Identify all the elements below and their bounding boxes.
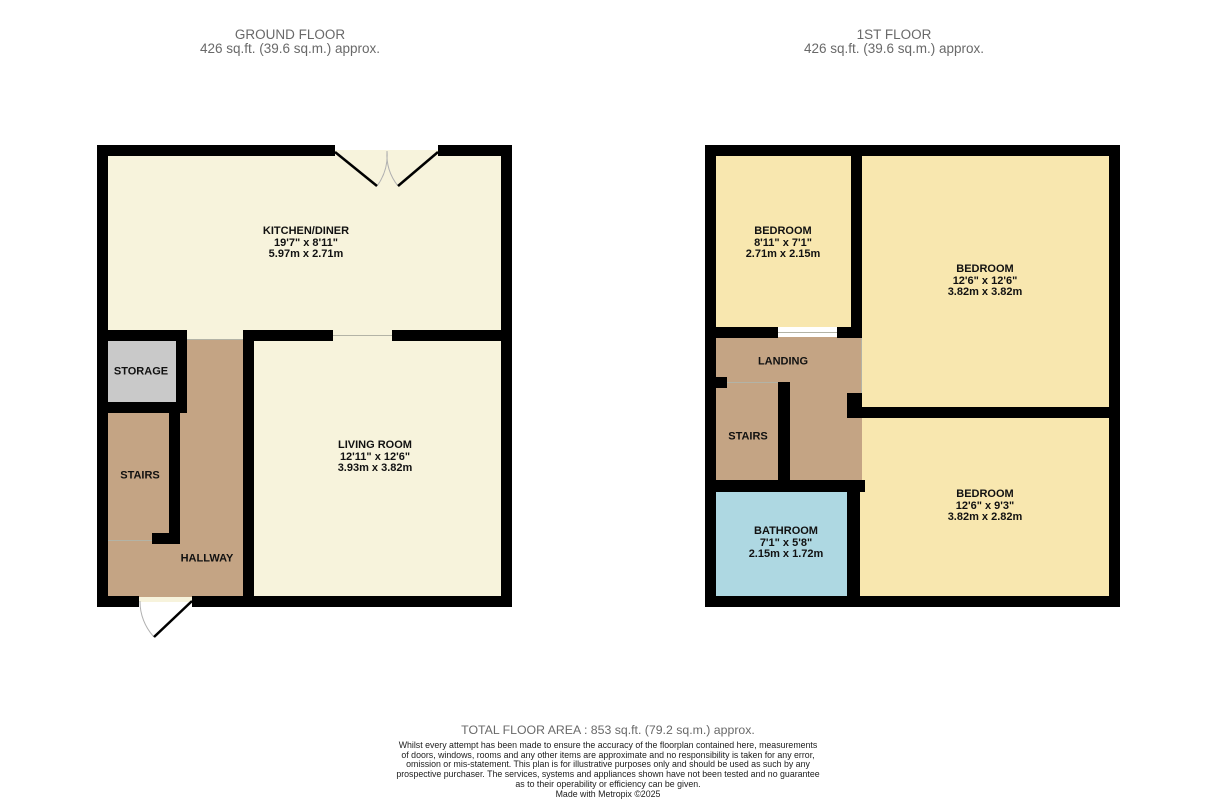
wall: [97, 330, 187, 341]
room-dims-m: 2.71m x 2.15m: [746, 249, 821, 261]
disclaimer: Whilst every attempt has been made to en…: [396, 741, 819, 799]
room-name: HALLWAY: [181, 553, 234, 565]
room-label-bedroom-large: BEDROOM 12'6" x 12'6" 3.82m x 3.82m: [948, 264, 1023, 299]
wall: [243, 330, 333, 341]
room-label-bathroom: BATHROOM 7'1" x 5'8" 2.15m x 1.72m: [749, 526, 824, 561]
room-name: KITCHEN/DINER: [263, 226, 349, 238]
wall: [778, 382, 790, 487]
wall: [705, 480, 865, 492]
room-name: BEDROOM: [948, 489, 1023, 501]
wall: [97, 402, 187, 413]
room-dims-m: 3.93m x 3.82m: [338, 463, 413, 475]
wall: [847, 393, 862, 418]
room-dims-m: 3.82m x 3.82m: [948, 287, 1023, 299]
room-name: STAIRS: [728, 431, 768, 443]
room-label-living-room: LIVING ROOM 12'11" x 12'6" 3.93m x 3.82m: [338, 440, 413, 475]
wall: [438, 145, 512, 156]
wall: [97, 145, 335, 156]
room-name: STORAGE: [114, 366, 168, 378]
ground-floor-plan: [97, 145, 512, 637]
wall: [837, 327, 862, 338]
wall: [97, 145, 108, 607]
floorplan-canvas: GROUND FLOOR 426 sq.ft. (39.6 sq.m.) app…: [0, 0, 1217, 800]
room-label-landing: LANDING: [758, 356, 808, 368]
wall: [97, 596, 139, 607]
entrance-door-arc: [140, 601, 154, 637]
room-name: LANDING: [758, 356, 808, 368]
wall: [1109, 145, 1120, 607]
wall: [192, 596, 512, 607]
wall: [851, 407, 1110, 418]
total-floor-area: TOTAL FLOOR AREA : 853 sq.ft. (79.2 sq.m…: [461, 723, 755, 737]
room-dims-m: 2.15m x 1.72m: [749, 549, 824, 561]
wall: [392, 330, 512, 341]
room-name: BATHROOM: [749, 526, 824, 538]
floorplan-drawing: [0, 0, 1217, 800]
room-name: LIVING ROOM: [338, 440, 413, 452]
room-label-stairs-ground: STAIRS: [120, 470, 160, 482]
wall: [501, 145, 512, 607]
wall: [851, 145, 862, 337]
entrance-door-leaf: [154, 601, 192, 637]
room-dims-m: 5.97m x 2.71m: [263, 249, 349, 261]
room-label-stairs-first: STAIRS: [728, 431, 768, 443]
wall: [243, 330, 254, 597]
wall: [705, 377, 727, 388]
wall: [705, 145, 716, 607]
room-name: BEDROOM: [746, 226, 821, 238]
wall: [176, 330, 187, 413]
room-label-kitchen-diner: KITCHEN/DINER 19'7" x 8'11" 5.97m x 2.71…: [263, 226, 349, 261]
room-label-storage: STORAGE: [114, 366, 168, 378]
room-label-bedroom-rear: BEDROOM 12'6" x 9'3" 3.82m x 2.82m: [948, 489, 1023, 524]
wall: [705, 596, 1120, 607]
credit-line: Made with Metropix ©2025: [396, 790, 819, 800]
room-name: BEDROOM: [948, 264, 1023, 276]
wall: [152, 533, 180, 544]
wall: [705, 327, 778, 338]
room-label-hallway: HALLWAY: [181, 553, 234, 565]
room-label-bedroom-front: BEDROOM 8'11" x 7'1" 2.71m x 2.15m: [746, 226, 821, 261]
wall: [705, 145, 1120, 156]
wall: [847, 480, 860, 597]
room-dims-m: 3.82m x 2.82m: [948, 512, 1023, 524]
room-name: STAIRS: [120, 470, 160, 482]
wall: [169, 413, 180, 544]
